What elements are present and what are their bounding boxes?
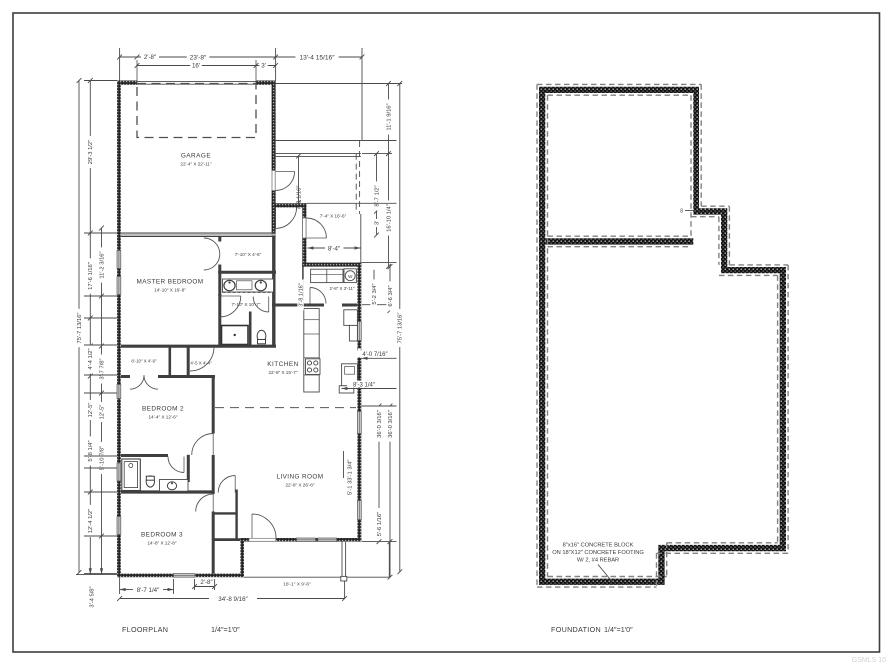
svg-text:5′-10 7/8″: 5′-10 7/8″ [99,446,105,470]
svg-text:16′-1″ X 9′-6″: 16′-1″ X 9′-6″ [283,582,311,588]
svg-text:5′-2 3/4″: 5′-2 3/4″ [372,283,378,304]
svg-text:17′-6 1/16″: 17′-6 1/16″ [88,262,94,290]
svg-text:13′-4 15/16″: 13′-4 15/16″ [299,54,335,61]
svg-text:12′-5″: 12′-5″ [88,403,94,418]
svg-text:11′-2 3/16″: 11′-2 3/16″ [99,251,105,278]
svg-text:36′-0 3/16″: 36′-0 3/16″ [377,410,383,438]
svg-text:8′-7 1/4″: 8′-7 1/4″ [137,587,160,594]
svg-text:FLOORPLAN: FLOORPLAN [122,625,168,634]
svg-text:11′-1 9/16″: 11′-1 9/16″ [386,103,392,130]
svg-text:14′-10″ X 16′-8″: 14′-10″ X 16′-8″ [154,288,186,293]
svg-text:5′-1 33′-1 3/4″: 5′-1 33′-1 3/4″ [348,460,354,496]
svg-text:8′-10″ X 4′-6″: 8′-10″ X 4′-6″ [131,359,157,364]
svg-text:8: 8 [680,209,683,215]
svg-text:LIVING ROOM: LIVING ROOM [276,474,323,481]
svg-text:GSMLS 10: GSMLS 10 [852,657,886,664]
svg-text:22′-8″ X 26′-8″: 22′-8″ X 26′-8″ [286,483,315,488]
svg-text:MASTER BEDROOM: MASTER BEDROOM [136,279,203,286]
svg-text:8′-4″: 8′-4″ [328,245,341,252]
svg-text:16′-10 1/4″: 16′-10 1/4″ [386,204,392,232]
svg-text:GARAGE: GARAGE [181,153,211,160]
svg-text:14′-4″ X 12′-6″: 14′-4″ X 12′-6″ [149,415,178,420]
svg-text:3′-8 1/16″: 3′-8 1/16″ [299,283,305,307]
svg-text:2′-8″: 2′-8″ [144,54,157,61]
svg-text:BEDROOM 2: BEDROOM 2 [142,406,184,413]
svg-text:1/4″=1′0″: 1/4″=1′0″ [604,625,633,634]
svg-text:2′-8″: 2′-8″ [200,579,213,586]
svg-text:ON 18″X12″ CONCRETE FOOTING: ON 18″X12″ CONCRETE FOOTING [552,550,644,556]
svg-text:23′-8″: 23′-8″ [190,54,207,61]
svg-text:3′-7 7/8″: 3′-7 7/8″ [99,358,105,379]
svg-text:4′-5 X 4′-4″: 4′-5 X 4′-4″ [190,361,212,366]
svg-text:6′-6 3/4″: 6′-6 3/4″ [388,285,394,306]
svg-text:12′-5″: 12′-5″ [99,405,105,420]
svg-text:7′-4″ X 16′-6″: 7′-4″ X 16′-6″ [320,214,347,219]
svg-text:36′-0 3/16″: 36′-0 3/16″ [388,410,394,438]
svg-text:2′-8″ X 3′-11″: 2′-8″ X 3′-11″ [330,286,355,291]
svg-text:34′-8 9/16″: 34′-8 9/16″ [218,596,248,603]
svg-text:7′-10″ X 4′-6″: 7′-10″ X 4′-6″ [235,252,262,257]
svg-text:3′: 3′ [374,221,380,225]
svg-text:3′-4 5/8″: 3′-4 5/8″ [89,586,95,607]
svg-text:29′-3 1/2″: 29′-3 1/2″ [88,140,94,164]
svg-text:16′: 16′ [192,63,201,70]
svg-text:22′-4″ X 22′-11″: 22′-4″ X 22′-11″ [180,162,212,167]
svg-text:75′-7 13/16″: 75′-7 13/16″ [77,313,83,344]
svg-text:8″x16″ CONCRETE BLOCK: 8″x16″ CONCRETE BLOCK [563,543,634,549]
svg-text:5′-6 1/16″: 5′-6 1/16″ [377,512,383,536]
svg-text:7′-10″ X 10′-7″: 7′-10″ X 10′-7″ [232,302,261,307]
svg-text:75′-7 13/16″: 75′-7 13/16″ [398,313,404,344]
svg-text:12′-4 1/2″: 12′-4 1/2″ [88,509,94,533]
svg-text:22′-8″ X 15′-7″: 22′-8″ X 15′-7″ [269,370,298,375]
svg-text:W: W [348,274,353,279]
svg-text:5′-8 1/4″: 5′-8 1/4″ [88,440,94,461]
svg-text:BEDROOM 3: BEDROOM 3 [141,532,183,539]
svg-text:KITCHEN: KITCHEN [267,361,299,368]
svg-text:1/4″=1′0″: 1/4″=1′0″ [211,625,240,634]
svg-text:14′-8″ X 12′-8″: 14′-8″ X 12′-8″ [148,541,177,546]
svg-text:FOUNDATION: FOUNDATION [551,625,601,634]
svg-text:8′-3 1/4″: 8′-3 1/4″ [353,382,376,388]
svg-text:4′-4 1/2″: 4′-4 1/2″ [88,348,94,369]
svg-text:W/ 2, #4 REBAR: W/ 2, #4 REBAR [577,558,619,564]
svg-text:7′-3 1/16″: 7′-3 1/16″ [297,186,303,210]
